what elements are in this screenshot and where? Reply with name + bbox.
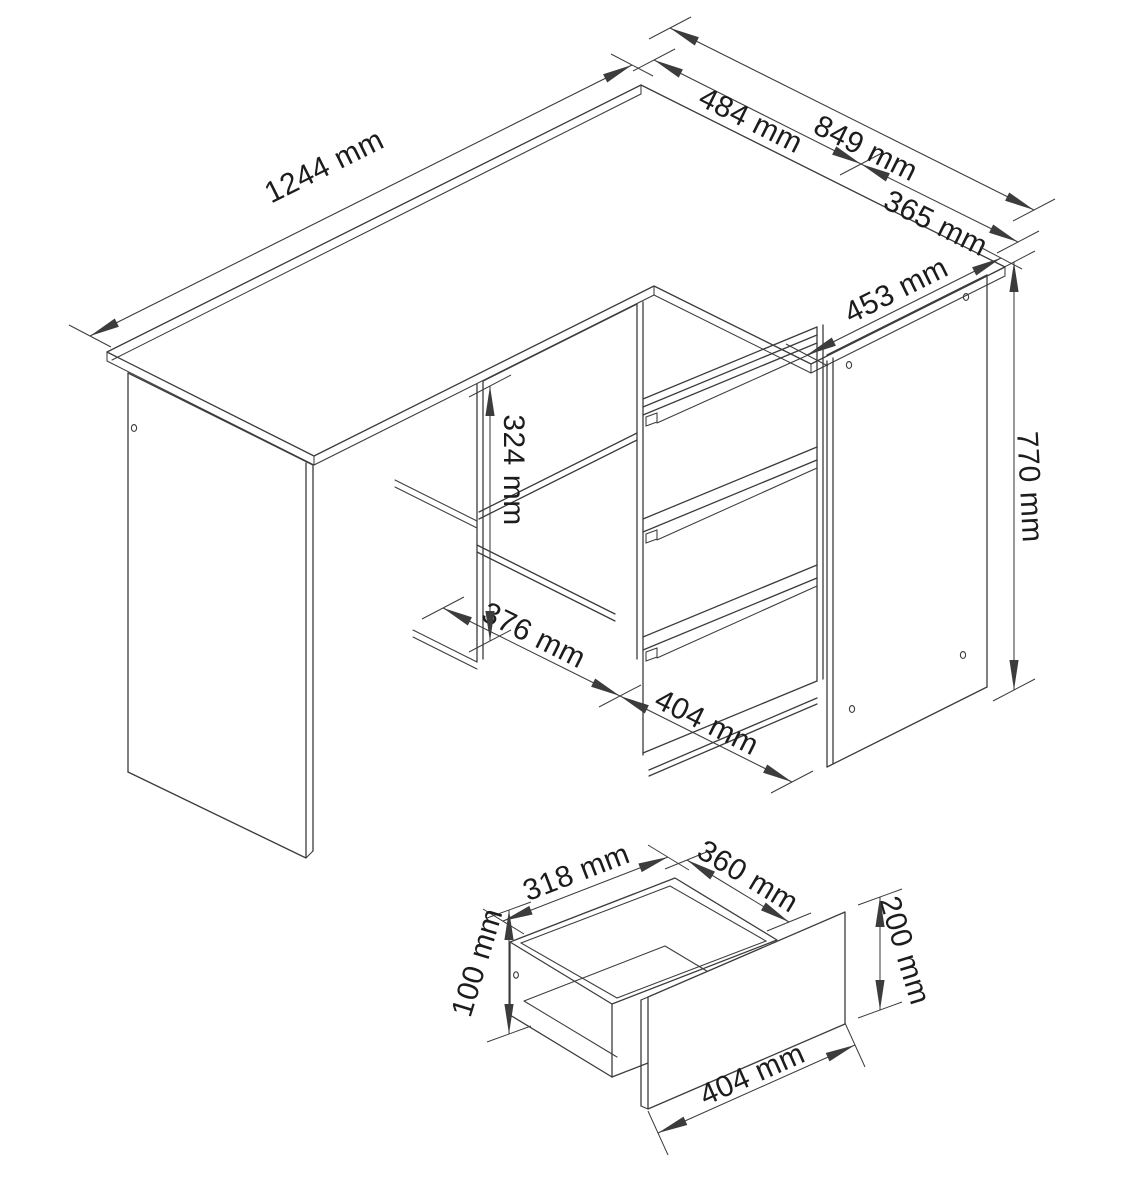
screw-hole — [846, 362, 851, 369]
dimension-arrowhead — [90, 318, 119, 336]
dimension-label-box-height: 100 mm — [445, 904, 509, 1020]
dimension-arrowhead — [638, 857, 668, 872]
dimension-arrowhead — [1005, 192, 1034, 210]
dimension-arrowhead — [485, 386, 494, 416]
dimension-arrowhead — [503, 906, 533, 921]
dimension-arrowhead — [443, 608, 472, 625]
screw-hole — [963, 294, 968, 301]
dimension-label-desk-length: 1244 mm — [259, 123, 389, 210]
dimension-arrowhead — [591, 679, 620, 696]
dimension-label-niche-height: 324 mm — [497, 414, 530, 525]
drawer-detail-drawing: 318 mm 360 mm 100 mm 200 mm 404 mm — [445, 834, 936, 1155]
drawer-handle-notch — [646, 413, 657, 426]
dimension-label-cabinet-height: 770 mm — [1010, 430, 1049, 543]
dimension-arrowhead — [603, 65, 632, 83]
dimension-arrowhead — [620, 696, 649, 714]
dimension-arrowhead — [658, 1117, 687, 1133]
dimension-arrowhead — [826, 1045, 855, 1061]
dimension-arrowhead — [504, 1004, 513, 1034]
dimension-label-niche-width: 376 mm — [477, 596, 591, 675]
left-side-panel — [128, 373, 313, 858]
right-side-panel — [827, 275, 987, 767]
dimension-label-inner-width: 318 mm — [519, 837, 635, 908]
screw-hole — [131, 425, 136, 432]
drawer-handle-notch — [646, 530, 657, 543]
diagram-page: 1244 mm 484 mm 849 mm 365 mm 453 mm — [0, 0, 1131, 1200]
dimension-arrowhead — [654, 60, 683, 78]
dimension-arrowhead — [763, 764, 792, 782]
drawer-front-1 — [643, 343, 817, 519]
drawer-front-2 — [643, 460, 817, 637]
drawer-handle-notch — [646, 648, 657, 661]
dimension-arrowhead — [875, 980, 884, 1010]
dimension-arrowhead — [1009, 660, 1018, 690]
dimension-label-drawer-front-width: 404 mm — [650, 683, 764, 762]
corner-desk-assembly-drawing: 1244 mm 484 mm 849 mm 365 mm 453 mm — [69, 17, 1055, 858]
screw-hole — [960, 652, 965, 659]
dimension-arrowhead — [670, 28, 699, 46]
screw-hole — [514, 972, 519, 978]
screw-hole — [849, 706, 854, 713]
technical-drawing-canvas: 1244 mm 484 mm 849 mm 365 mm 453 mm — [0, 0, 1131, 1200]
dimension-arrowhead — [989, 225, 1018, 242]
dimension-label-right-total-depth: 849 mm — [809, 109, 923, 188]
